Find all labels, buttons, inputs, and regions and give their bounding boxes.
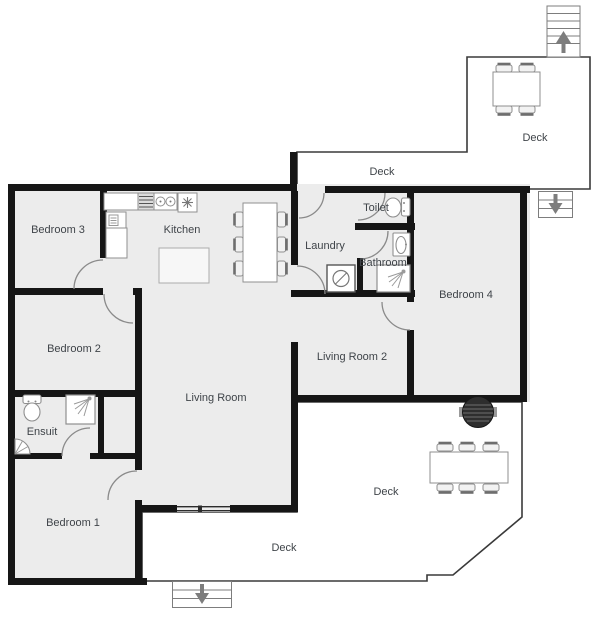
room-label-bedroom-1: Bedroom 1 — [46, 517, 100, 529]
deck-label-rear-right: Deck — [373, 486, 399, 498]
stairs-bottom — [173, 582, 232, 608]
stairs-right — [539, 192, 573, 218]
washing-machine-icon — [327, 265, 355, 292]
cooktop-icon — [178, 193, 197, 212]
ensuit-toilet-icon — [23, 395, 41, 421]
room-label-ensuit: Ensuit — [27, 426, 58, 438]
room-label-living-room: Living Room — [185, 392, 246, 404]
deck-label-front-strip: Deck — [369, 166, 395, 178]
ensuit-shower-icon — [66, 395, 95, 424]
room-label-laundry: Laundry — [305, 240, 345, 252]
room-label-toilet: Toilet — [363, 202, 389, 214]
stairs-top-right — [547, 6, 580, 57]
dining-table — [235, 203, 287, 282]
room-label-bedroom-2: Bedroom 2 — [47, 343, 101, 355]
room-label-bedroom-4: Bedroom 4 — [439, 289, 493, 301]
counter — [104, 193, 138, 210]
dishwasher-icon — [106, 212, 126, 228]
deck-top-outline — [297, 57, 590, 189]
room-label-living-room-2: Living Room 2 — [317, 351, 387, 363]
deck-label-top-right: Deck — [522, 132, 548, 144]
room-label-kitchen: Kitchen — [164, 224, 201, 236]
floor-plan-canvas: Bedroom 3 Kitchen Laundry Toilet Bathroo… — [0, 0, 600, 620]
bathroom-sink-icon — [393, 233, 410, 256]
deck-label-rear-strip: Deck — [271, 542, 297, 554]
double-sink-icon — [154, 193, 177, 210]
cabinet — [106, 228, 127, 258]
kitchen-island — [159, 248, 209, 283]
floor-plan: Bedroom 3 Kitchen Laundry Toilet Bathroo… — [0, 0, 600, 620]
room-label-bathroom: Bathroom — [359, 257, 407, 269]
shower-icon — [377, 265, 410, 292]
deck-table-bottom — [430, 443, 508, 493]
stove-icon — [138, 193, 154, 210]
room-label-bedroom-3: Bedroom 3 — [31, 224, 85, 236]
